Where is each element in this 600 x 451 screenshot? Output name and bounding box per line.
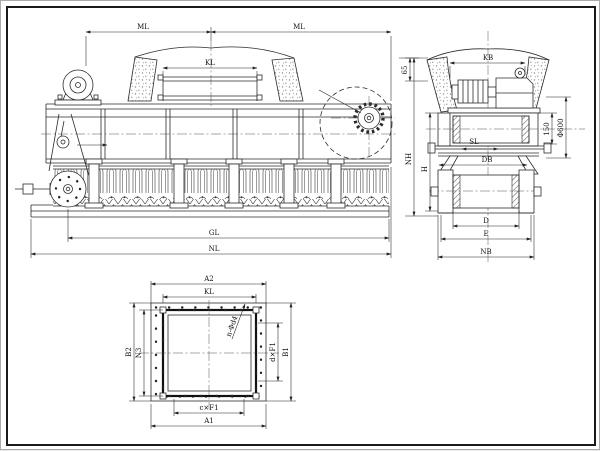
dim-label-cxf1: c×F1 — [199, 404, 218, 412]
roller — [453, 175, 519, 208]
drive-unit — [448, 68, 540, 113]
side-bottom-dimensions: D E NB — [438, 211, 534, 260]
hopper-wall-left — [128, 57, 157, 101]
dim-label-n3: N3 — [135, 348, 143, 359]
front-view: ML ML KL — [15, 23, 397, 258]
dim-label-gl: GL — [209, 229, 220, 237]
dim-label-a1: A1 — [203, 417, 214, 425]
flange-plates — [139, 300, 279, 409]
dim-label-drum-dia: Φ600 — [557, 118, 565, 137]
sprocket-leader — [319, 90, 361, 113]
dim-label-ml-left: ML — [137, 23, 149, 31]
kb-dimension: KB — [450, 54, 525, 78]
dim-label-dxf1: d×F1 — [269, 342, 277, 362]
dim-label-b1: B1 — [282, 347, 290, 357]
feeder-outline-drawing: ML ML KL — [1, 1, 600, 451]
dim-label-kb: KB — [483, 54, 493, 62]
inlet-hopper: KL — [128, 41, 303, 106]
dim-label-h: H — [421, 166, 429, 172]
dim-label-d: D — [483, 217, 489, 225]
dim-label-nl: NL — [209, 245, 220, 253]
dim-label-e: E — [483, 230, 488, 238]
dim-label-kl: KL — [205, 59, 215, 67]
motor-endcap — [452, 85, 458, 99]
dim-label-db: DB — [482, 156, 493, 164]
plan-bottom-dimensions: c×F1 A1 — [151, 399, 266, 429]
dim-label-a2: A2 — [203, 275, 214, 283]
motor-base — [448, 108, 540, 113]
drawing-canvas: ML ML KL — [0, 0, 600, 450]
drive-drum — [453, 116, 529, 143]
coupling — [488, 87, 496, 97]
dim-label-150: 150 — [543, 122, 551, 135]
plan-top-dimensions: A2 KL — [151, 275, 266, 307]
roller-box — [429, 170, 543, 213]
inlet-flange — [158, 75, 262, 101]
tail-pulley — [15, 171, 86, 207]
bearing-pedestal — [55, 70, 101, 105]
dim-label-nb: NB — [480, 248, 491, 256]
gearbox-cap — [515, 68, 525, 78]
dim-label-ml-right: ML — [293, 23, 305, 31]
plan-view: A2 KL n-Φd4 d×F1 — [125, 275, 296, 429]
dim-label-plan-kl: KL — [204, 288, 214, 296]
shaft-stub-left — [431, 187, 438, 196]
dim-label-b2: B2 — [125, 347, 133, 357]
take-up-block — [23, 184, 33, 194]
dim-label-65: 65 — [401, 66, 409, 75]
side-wall-left — [427, 57, 457, 112]
shaft-stub-right — [534, 187, 541, 196]
hopper-wall-right — [272, 58, 303, 101]
dim-label-sl: SL — [469, 138, 479, 146]
dim-label-nh: NH — [405, 153, 413, 165]
wall-dimension: 65 — [401, 58, 428, 81]
feeder-frame — [41, 104, 397, 163]
side-view: KB 65 — [399, 31, 585, 263]
drive-sprocket — [319, 87, 395, 159]
